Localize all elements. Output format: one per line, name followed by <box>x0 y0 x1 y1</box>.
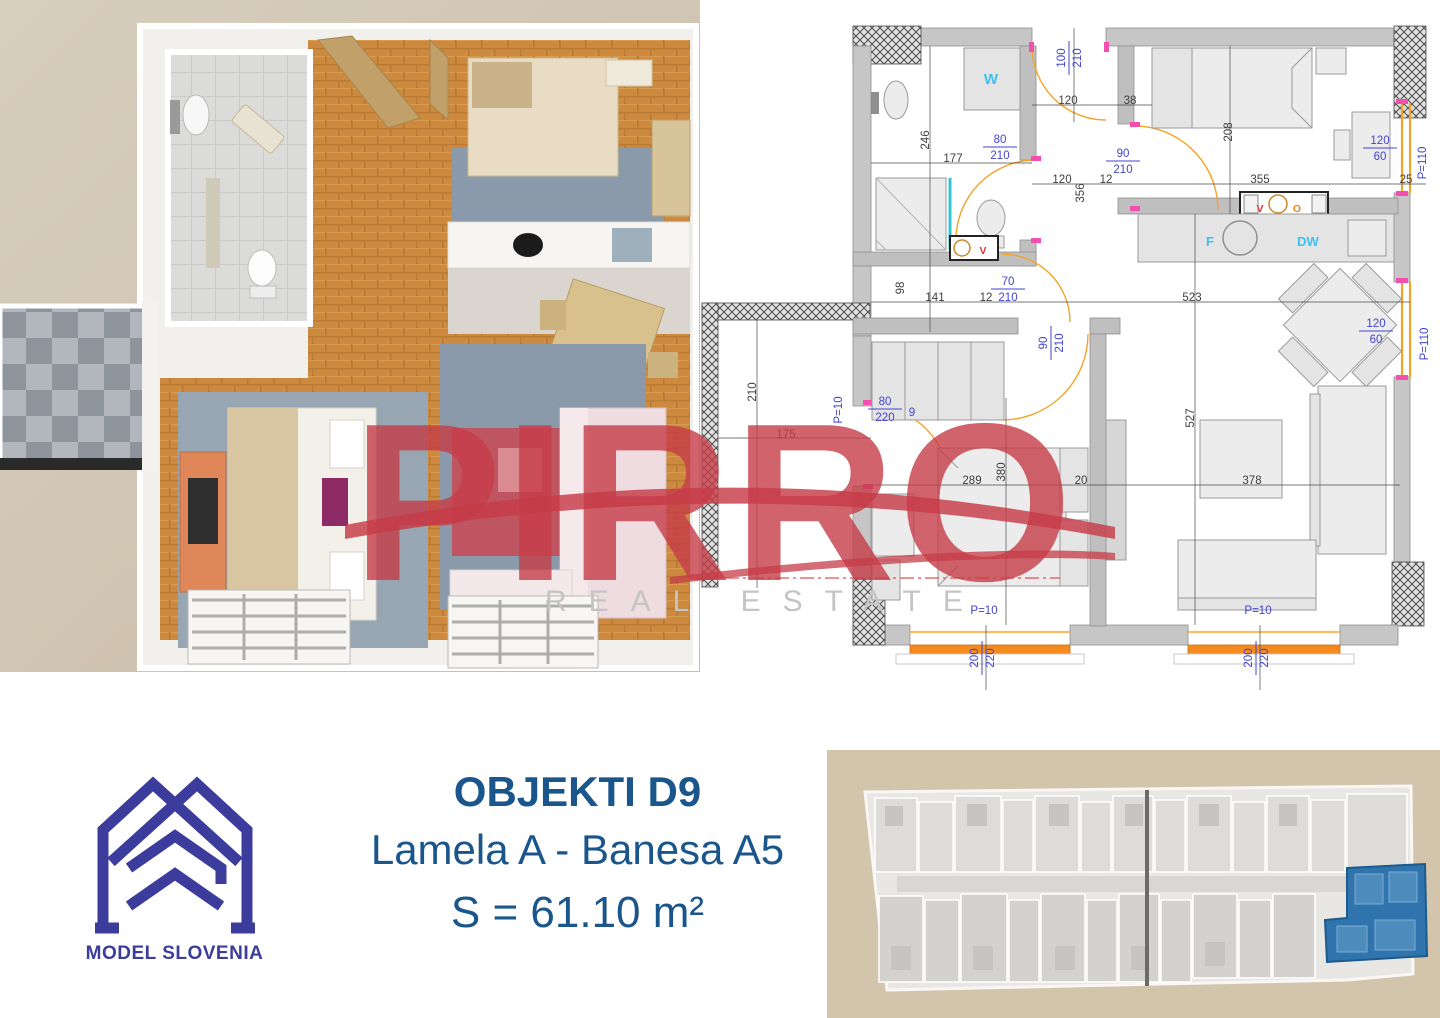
svg-text:V: V <box>1256 203 1263 215</box>
svg-text:70: 70 <box>1002 276 1015 288</box>
real-estate-tagline: REAL ESTATE <box>545 585 985 619</box>
svg-text:F: F <box>1206 234 1214 249</box>
svg-text:98: 98 <box>895 282 907 295</box>
unit-caption: OBJEKTI D9 Lamela A - Banesa A5 S = 61.1… <box>325 768 830 938</box>
svg-text:120: 120 <box>1370 135 1389 147</box>
svg-text:60: 60 <box>1374 151 1387 163</box>
svg-text:210: 210 <box>1054 333 1066 352</box>
svg-text:60: 60 <box>1370 334 1383 346</box>
svg-text:378: 378 <box>1242 475 1261 487</box>
svg-text:P=110: P=110 <box>1417 147 1429 180</box>
svg-text:V: V <box>979 245 986 257</box>
svg-text:527: 527 <box>1185 408 1197 427</box>
svg-text:W: W <box>984 71 999 88</box>
svg-text:220: 220 <box>985 648 997 667</box>
caption-object: OBJEKTI D9 <box>325 768 830 816</box>
svg-text:90: 90 <box>1117 148 1130 160</box>
svg-text:210: 210 <box>990 150 1009 162</box>
svg-text:12: 12 <box>1100 174 1113 186</box>
svg-text:80: 80 <box>994 134 1007 146</box>
caption-area: S = 61.10 m² <box>325 888 830 938</box>
svg-text:O: O <box>1293 203 1301 215</box>
svg-text:210: 210 <box>1113 164 1132 176</box>
svg-text:177: 177 <box>943 153 962 165</box>
svg-text:523: 523 <box>1182 292 1201 304</box>
brochure-page: 1002101203820824617780210902101203561235… <box>0 0 1440 1018</box>
svg-text:208: 208 <box>1223 122 1235 141</box>
model-slovenia-logo: MODEL SLOVENIA <box>82 772 267 965</box>
svg-text:356: 356 <box>1075 183 1087 202</box>
caption-lamela: Lamela A - Banesa A5 <box>325 826 830 874</box>
svg-text:141: 141 <box>925 292 944 304</box>
svg-text:210: 210 <box>1072 48 1084 67</box>
svg-text:246: 246 <box>920 130 932 149</box>
svg-text:120: 120 <box>1058 95 1077 107</box>
svg-text:12: 12 <box>980 292 993 304</box>
svg-text:DW: DW <box>1297 234 1319 249</box>
svg-text:120: 120 <box>1052 174 1071 186</box>
svg-text:220: 220 <box>1259 648 1271 667</box>
svg-text:P=110: P=110 <box>1419 328 1431 361</box>
svg-text:200: 200 <box>1243 648 1255 667</box>
svg-text:100: 100 <box>1056 48 1068 67</box>
building-floor-overview <box>827 750 1440 1018</box>
logo-houses-icon <box>89 772 261 934</box>
render-bathroom <box>168 52 310 324</box>
svg-text:38: 38 <box>1124 95 1137 107</box>
logo-label: MODEL SLOVENIA <box>82 943 267 965</box>
render-balcony <box>0 300 158 472</box>
svg-text:90: 90 <box>1038 337 1050 350</box>
svg-text:210: 210 <box>998 292 1017 304</box>
svg-text:120: 120 <box>1366 318 1385 330</box>
svg-text:200: 200 <box>969 648 981 667</box>
svg-text:25: 25 <box>1400 174 1413 186</box>
svg-text:355: 355 <box>1250 174 1269 186</box>
svg-text:P=10: P=10 <box>1244 605 1271 617</box>
